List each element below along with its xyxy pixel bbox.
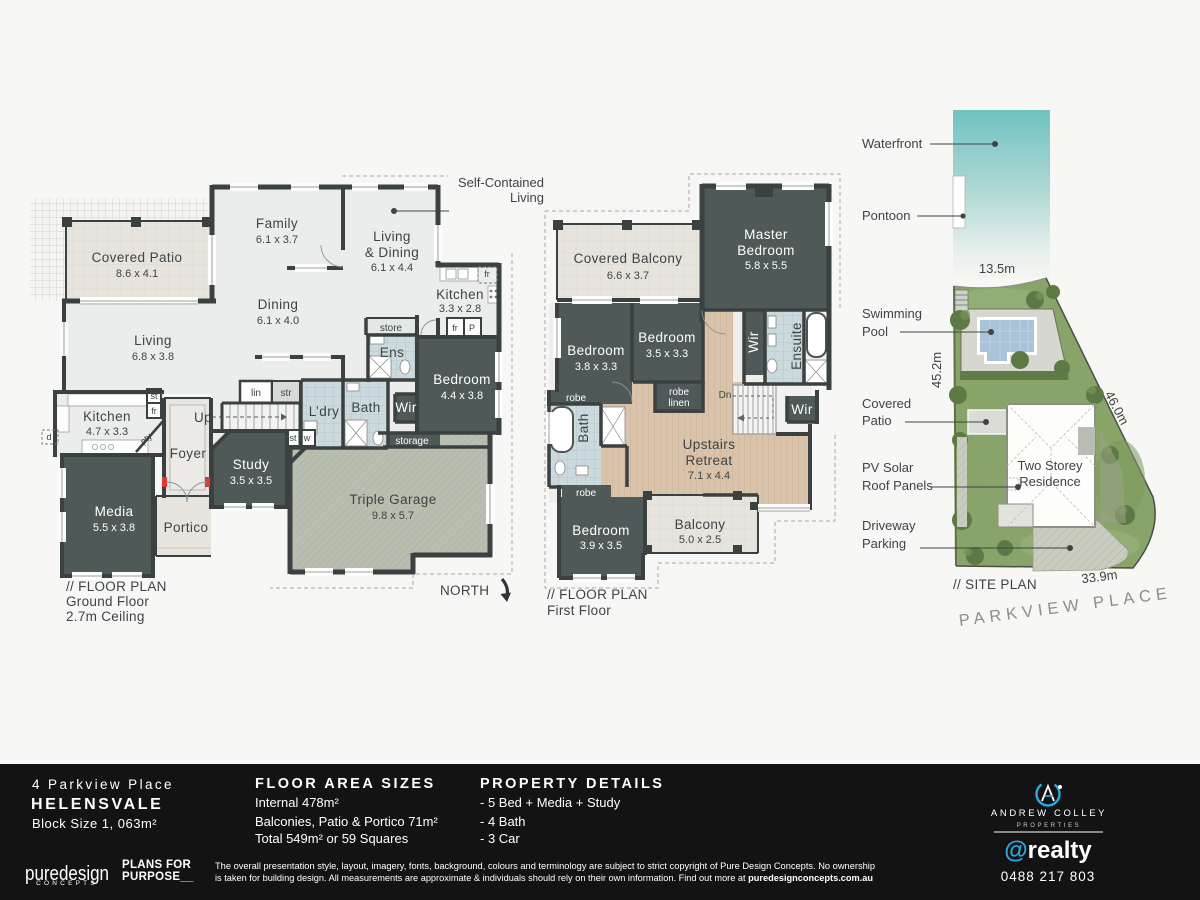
svg-text:4.4 x 3.8: 4.4 x 3.8 (441, 390, 483, 402)
svg-text:Internal 478m²: Internal 478m² (255, 795, 339, 810)
svg-text:Roof Panels: Roof Panels (862, 478, 933, 493)
svg-text:// FLOOR PLAN: // FLOOR PLAN (66, 579, 167, 594)
svg-text:w: w (303, 433, 311, 443)
svg-text:Living: Living (134, 333, 172, 348)
svg-text:Balcony: Balcony (675, 517, 726, 532)
svg-text:Patio: Patio (862, 413, 892, 428)
svg-text:45.2m: 45.2m (929, 352, 944, 388)
svg-text:// SITE PLAN: // SITE PLAN (953, 577, 1037, 592)
svg-text:Bedroom: Bedroom (638, 330, 696, 345)
svg-text:4.7 x 3.3: 4.7 x 3.3 (86, 426, 128, 438)
svg-text:Bedroom: Bedroom (567, 343, 625, 358)
svg-text:Wir: Wir (746, 331, 761, 353)
svg-text:CONCEPTS: CONCEPTS (36, 880, 98, 887)
svg-text:3.3 x 2.8: 3.3 x 2.8 (439, 303, 481, 315)
svg-text:P: P (469, 323, 475, 333)
svg-text:Wir: Wir (791, 402, 813, 417)
svg-text:Ground Floor: Ground Floor (66, 594, 149, 609)
svg-text:Dining: Dining (258, 297, 299, 312)
svg-text:Swimming: Swimming (862, 306, 922, 321)
svg-text:First Floor: First Floor (547, 603, 611, 618)
svg-text:fr: fr (484, 269, 490, 279)
svg-text:0488 217 803: 0488 217 803 (1001, 869, 1096, 884)
svg-text:storage: storage (395, 436, 429, 447)
svg-text:6.1 x 4.0: 6.1 x 4.0 (257, 315, 299, 327)
svg-text:st: st (289, 433, 297, 443)
svg-text:PURPOSE__: PURPOSE__ (122, 871, 194, 883)
svg-text:Study: Study (233, 457, 270, 472)
svg-text:Bedroom: Bedroom (737, 243, 795, 258)
svg-text:FLOOR AREA SIZES: FLOOR AREA SIZES (255, 776, 436, 792)
svg-text:Triple Garage: Triple Garage (349, 492, 436, 507)
svg-text:robe: robe (669, 387, 689, 398)
svg-text:Bedroom: Bedroom (572, 523, 630, 538)
svg-text:3.5 x 3.3: 3.5 x 3.3 (646, 348, 688, 360)
svg-text:Self-Contained: Self-Contained (458, 175, 544, 190)
svg-text:3.5 x 3.5: 3.5 x 3.5 (230, 475, 272, 487)
svg-text:6.8 x 3.8: 6.8 x 3.8 (132, 351, 174, 363)
svg-text:The overall presentation style: The overall presentation style, layout, … (215, 860, 875, 871)
svg-text:Media: Media (95, 504, 134, 519)
svg-text:Family: Family (256, 216, 298, 231)
svg-text:2.7m Ceiling: 2.7m Ceiling (66, 609, 145, 624)
svg-text:Covered Patio: Covered Patio (92, 250, 183, 265)
svg-text:Kitchen: Kitchen (83, 409, 131, 424)
svg-text:PROPERTIES: PROPERTIES (1017, 823, 1082, 829)
svg-text:Parking: Parking (862, 536, 906, 551)
svg-text:PV Solar: PV Solar (862, 460, 914, 475)
svg-text:Total 549m² or 59 Squares: Total 549m² or 59 Squares (255, 831, 409, 846)
svg-text:store: store (380, 323, 403, 334)
svg-text:fr: fr (452, 323, 458, 333)
svg-text:d: d (46, 432, 51, 442)
svg-text:Bath: Bath (576, 413, 591, 442)
svg-text:Driveway: Driveway (862, 518, 916, 533)
svg-text:8.6 x 4.1: 8.6 x 4.1 (116, 268, 158, 280)
svg-text:13.5m: 13.5m (979, 261, 1015, 276)
svg-text:Bedroom: Bedroom (433, 372, 491, 387)
svg-text:robe: robe (576, 488, 596, 499)
svg-text:Portico: Portico (164, 520, 209, 535)
svg-text:Foyer: Foyer (170, 446, 207, 461)
svg-text:3.9 x 3.5: 3.9 x 3.5 (580, 540, 622, 552)
svg-text:3.8 x 3.3: 3.8 x 3.3 (575, 361, 617, 373)
svg-text:fr: fr (151, 406, 157, 416)
svg-text:Covered Balcony: Covered Balcony (574, 251, 683, 266)
svg-text:NORTH: NORTH (440, 583, 489, 598)
svg-text:Bath: Bath (351, 400, 380, 415)
svg-text:Up: Up (194, 410, 212, 425)
svg-text:Ensuite: Ensuite (789, 322, 804, 370)
svg-text:& Dining: & Dining (365, 245, 419, 260)
svg-text:6.6 x 3.7: 6.6 x 3.7 (607, 270, 649, 282)
svg-text:Residence: Residence (1019, 474, 1080, 489)
svg-text:ANDREW COLLEY: ANDREW COLLEY (991, 808, 1107, 819)
svg-text:str: str (280, 388, 292, 399)
svg-text:5.0 x 2.5: 5.0 x 2.5 (679, 534, 721, 546)
svg-text:linen: linen (668, 398, 689, 409)
svg-text:Two Storey: Two Storey (1017, 458, 1083, 473)
svg-text:6.1 x 4.4: 6.1 x 4.4 (371, 262, 413, 274)
svg-text:Kitchen: Kitchen (436, 287, 484, 302)
svg-text:4 Parkview Place: 4 Parkview Place (32, 777, 174, 792)
svg-text:@realty: @realty (1004, 837, 1092, 864)
svg-text:Master: Master (744, 227, 788, 242)
svg-text:Balconies, Patio & Portico 71m: Balconies, Patio & Portico 71m² (255, 814, 438, 829)
svg-text:7.1 x 4.4: 7.1 x 4.4 (688, 470, 730, 482)
svg-text:- 4 Bath: - 4 Bath (480, 814, 526, 829)
svg-text:Retreat: Retreat (685, 453, 732, 468)
svg-text:// FLOOR PLAN: // FLOOR PLAN (547, 587, 648, 602)
svg-text:9.8 x 5.7: 9.8 x 5.7 (372, 510, 414, 522)
svg-text:6.1 x 3.7: 6.1 x 3.7 (256, 234, 298, 246)
svg-text:- 5 Bed + Media + Study: - 5 Bed + Media + Study (480, 795, 621, 810)
svg-text:Ens: Ens (380, 345, 404, 360)
svg-text:Wir: Wir (395, 400, 417, 415)
svg-text:st: st (150, 391, 158, 401)
svg-text:5.8 x 5.5: 5.8 x 5.5 (745, 260, 787, 272)
svg-text:5.5 x 3.8: 5.5 x 3.8 (93, 522, 135, 534)
svg-text:PROPERTY DETAILS: PROPERTY DETAILS (480, 776, 664, 792)
svg-text:robe: robe (566, 393, 586, 404)
svg-text:HELENSVALE: HELENSVALE (31, 796, 163, 813)
svg-text:Block Size 1, 063m²: Block Size 1, 063m² (32, 816, 157, 831)
svg-text:L’dry: L’dry (309, 404, 340, 419)
svg-text:Living: Living (373, 229, 411, 244)
svg-text:Waterfront: Waterfront (862, 136, 923, 151)
svg-text:Dn: Dn (719, 390, 732, 401)
svg-text:lin: lin (251, 388, 261, 399)
svg-text:Pool: Pool (862, 324, 888, 339)
svg-text:PLANS FOR: PLANS FOR (122, 859, 192, 871)
svg-text:- 3 Car: - 3 Car (480, 831, 520, 846)
svg-text:Upstairs: Upstairs (683, 437, 736, 452)
svg-text:Covered: Covered (862, 396, 911, 411)
svg-text:Pontoon: Pontoon (862, 208, 910, 223)
svg-text:is taken for building design.: is taken for building design. All measur… (215, 872, 873, 883)
svg-text:Living: Living (510, 190, 544, 205)
